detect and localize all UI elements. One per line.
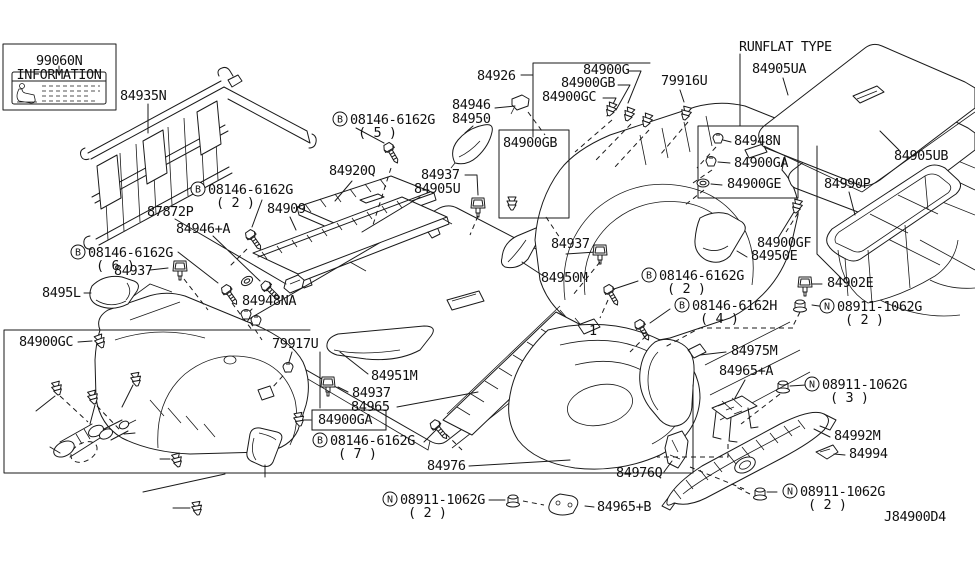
clip-84994 — [816, 445, 838, 459]
nut-icon — [507, 495, 520, 507]
part-label-84937-26: 84937 — [114, 263, 153, 279]
svg-text:( 2 ): ( 2 ) — [808, 497, 847, 513]
part-label-84976-46: 84976 — [427, 458, 466, 474]
clip-icon — [171, 453, 184, 468]
svg-text:84900GA: 84900GA — [318, 412, 372, 428]
svg-text:84905UA: 84905UA — [752, 61, 806, 77]
svg-text:( 2 ): ( 2 ) — [667, 281, 706, 297]
svg-text:84905UB: 84905UB — [894, 148, 948, 164]
part-label-84935n-1: 84935N — [120, 88, 167, 104]
svg-text:84905U: 84905U — [414, 181, 461, 197]
canister-25336Q-25312Q — [51, 420, 136, 461]
plug-icon — [697, 179, 709, 187]
part-label-84902e-36: 84902E — [827, 275, 874, 291]
svg-text:84965+B: 84965+B — [597, 499, 651, 515]
nut-icon — [794, 300, 807, 312]
svg-text:( 2 ): ( 2 ) — [408, 505, 447, 521]
svg-text:84950E: 84950E — [751, 248, 798, 264]
clip-icon — [51, 381, 64, 396]
part-label-87872p-22: 87872P — [147, 204, 194, 220]
svg-text:84900GA: 84900GA — [734, 155, 788, 171]
clip-icon — [191, 501, 203, 516]
svg-text:B: B — [679, 301, 685, 312]
svg-text:84975M: 84975M — [731, 343, 778, 359]
part-label-84965+b-52: 84965+B — [597, 499, 651, 515]
svg-text:84976: 84976 — [427, 458, 466, 474]
svg-text:( 7 ): ( 7 ) — [338, 446, 377, 462]
svg-text:N: N — [809, 380, 815, 391]
part-label-84951m-41: 84951M — [371, 368, 418, 384]
snap-clip-icon — [706, 157, 716, 167]
svg-text:RUNFLAT TYPE: RUNFLAT TYPE — [739, 39, 832, 55]
part-label-1-55: 1 — [589, 323, 597, 339]
svg-text:J84900D4: J84900D4 — [884, 509, 946, 525]
part-label-84900ga-17: 84900GA — [734, 155, 788, 171]
svg-text:84951M: 84951M — [371, 368, 418, 384]
svg-text:84900GB: 84900GB — [503, 135, 557, 151]
part-label-84950m-32: 84950M — [541, 270, 588, 286]
part-label-runflat-type-13: RUNFLAT TYPE — [739, 39, 832, 55]
svg-text:84994: 84994 — [849, 446, 888, 462]
part-label-84950-7: 84950 — [452, 111, 491, 127]
part-label-84948na-28: 84948NA — [242, 293, 296, 309]
svg-text:N: N — [824, 302, 830, 313]
part-label-84909-23: 84909 — [267, 201, 306, 217]
svg-text:84948NA: 84948NA — [242, 293, 296, 309]
grommet-icon — [173, 261, 187, 280]
svg-text:79916U: 79916U — [661, 73, 708, 89]
part-label-84976q-50: 84976Q — [616, 465, 663, 481]
part-label-j84900d4-54: J84900D4 — [884, 509, 946, 525]
svg-text:84900GC: 84900GC — [19, 334, 73, 350]
bolt-icon — [244, 228, 265, 252]
svg-text:84909: 84909 — [267, 201, 306, 217]
part-label-84937-31: 84937 — [551, 236, 590, 252]
bolt-icon — [382, 141, 402, 165]
svg-text:84950: 84950 — [452, 111, 491, 127]
clip-icon — [507, 197, 517, 210]
part-label-84905u-11: 84905U — [414, 181, 461, 197]
svg-text:B: B — [75, 248, 81, 259]
svg-text:87872P: 87872P — [147, 204, 194, 220]
part-label-84965+a-40: 84965+A — [719, 363, 773, 379]
svg-text:84902E: 84902E — [827, 275, 874, 291]
clip-bracket-84946 — [511, 95, 529, 114]
svg-text:N: N — [387, 495, 393, 506]
cover-84950 — [451, 125, 492, 168]
part-label-84948n-16: 84948N — [734, 133, 781, 149]
parts-diagram-canvas: 99060N84935N8492684900G84900GB84900GC849… — [0, 0, 975, 566]
svg-text:B: B — [195, 185, 201, 196]
part-label-84900gb-12: 84900GB — [503, 135, 557, 151]
part-label-08146-6162g-45: B08146-6162G( 7 ) — [313, 433, 415, 462]
svg-text:84900GE: 84900GE — [727, 176, 781, 192]
svg-text:84976Q: 84976Q — [616, 465, 663, 481]
part-label-84975m-39: 84975M — [731, 343, 778, 359]
plug-icon — [240, 275, 254, 288]
part-label-84900ge-18: 84900GE — [727, 176, 781, 192]
clip-icon — [622, 107, 636, 123]
nut-icon — [754, 488, 767, 500]
svg-text:B: B — [646, 271, 652, 282]
svg-text:84992M: 84992M — [834, 428, 881, 444]
part-label-08146-6162g-8: B08146-6162G( 5 ) — [333, 112, 435, 141]
part-label-84926-2: 84926 — [477, 68, 516, 84]
part-label-84905ub-19: 84905UB — [894, 148, 948, 164]
part-label-08911-1062g-47: N08911-1062G( 3 ) — [805, 377, 907, 406]
svg-text:84926: 84926 — [477, 68, 516, 84]
part-label-84946+a-24: 84946+A — [176, 221, 230, 237]
svg-text:B: B — [317, 436, 323, 447]
bracket-84976Q — [665, 431, 688, 468]
svg-text:84937: 84937 — [114, 263, 153, 279]
svg-text:84900GC: 84900GC — [542, 89, 596, 105]
grommet-icon — [798, 277, 812, 296]
part-label-08911-1062g-53: N08911-1062G( 2 ) — [783, 484, 885, 513]
svg-text:84965+A: 84965+A — [719, 363, 773, 379]
part-label-84990p-20: 84990P — [824, 176, 871, 192]
svg-text:( 2 ): ( 2 ) — [845, 312, 884, 328]
svg-text:( 3 ): ( 3 ) — [830, 390, 869, 406]
svg-text:( 4 ): ( 4 ) — [700, 311, 739, 327]
part-label-84950e-35: 84950E — [751, 248, 798, 264]
svg-text:84990P: 84990P — [824, 176, 871, 192]
svg-text:B: B — [337, 115, 343, 126]
svg-text:84950M: 84950M — [541, 270, 588, 286]
part-label-84920q-9: 84920Q — [329, 163, 376, 179]
snap-clip-icon — [713, 134, 723, 144]
part-label-08911-1062g-38: N08911-1062G( 2 ) — [820, 299, 922, 328]
svg-text:N: N — [787, 487, 793, 498]
svg-text:1: 1 — [589, 323, 597, 339]
snap-clip-icon — [241, 310, 251, 320]
part-label-08911-1062g-51: N08911-1062G( 2 ) — [383, 492, 485, 521]
svg-text:8495L: 8495L — [42, 285, 81, 301]
part-label-8495l-27: 8495L — [42, 285, 81, 301]
svg-text:( 5 ): ( 5 ) — [358, 125, 397, 141]
bracket-84965A — [712, 396, 758, 442]
bolt-icon — [220, 283, 241, 307]
svg-text:79917U: 79917U — [272, 336, 319, 352]
part-label-84905ua-14: 84905UA — [752, 61, 806, 77]
clip-icon — [604, 102, 618, 118]
svg-text:84920Q: 84920Q — [329, 163, 376, 179]
parts-diagram-page: 99060N84935N8492684900G84900GB84900GC849… — [0, 0, 975, 566]
svg-text:( 2 ): ( 2 ) — [216, 195, 255, 211]
snap-clip-icon — [251, 316, 261, 326]
part-label-79916u-15: 79916U — [661, 73, 708, 89]
info-card-title: INFORMATION — [16, 67, 101, 83]
grommet-icon — [321, 377, 335, 396]
part-label-79917u-30: 79917U — [272, 336, 319, 352]
snap-clip-icon — [283, 363, 293, 373]
grommet-icon — [471, 198, 485, 217]
part-label-84900gc-5: 84900GC — [542, 89, 596, 105]
nut-icon — [777, 381, 790, 393]
svg-text:84948N: 84948N — [734, 133, 781, 149]
svg-text:84937: 84937 — [551, 236, 590, 252]
bracket-84965B — [549, 494, 578, 515]
svg-text:84935N: 84935N — [120, 88, 167, 104]
pad-84951E — [247, 428, 282, 467]
part-label-84994-49: 84994 — [849, 446, 888, 462]
part-label-84992m-48: 84992M — [834, 428, 881, 444]
svg-text:84946+A: 84946+A — [176, 221, 230, 237]
part-label-84900gc-29: 84900GC — [19, 334, 73, 350]
